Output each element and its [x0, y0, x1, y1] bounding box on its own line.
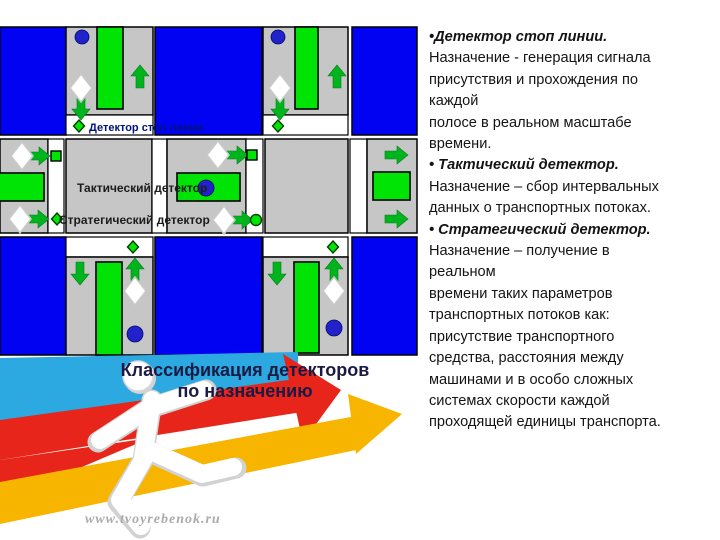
vehicle-dot	[326, 320, 342, 336]
info-line: средства, расстояния между	[429, 348, 715, 369]
slide-title: Классификация детекторов по назначению	[60, 360, 430, 402]
info-line: • Стратегический детектор.	[429, 220, 715, 241]
presentation-slide: Детектор стоп линии Тактический детектор…	[0, 0, 720, 540]
info-line: каждой	[429, 91, 715, 112]
info-line: данных о транспортных потоках.	[429, 198, 715, 219]
city-block	[0, 237, 66, 355]
info-line: проходящей единицы транспорта.	[429, 412, 715, 433]
detection-zone	[96, 262, 122, 355]
vehicle-dot	[127, 326, 143, 342]
strategic-label: Стратегический детектор	[59, 213, 210, 227]
info-line: полосе в реальном масштабе	[429, 113, 715, 134]
info-line: присутствие транспортного	[429, 327, 715, 348]
info-line: •Детектор стоп линии.	[429, 27, 715, 48]
detection-zone	[0, 173, 44, 201]
detector-square-icon	[51, 151, 61, 161]
city-block	[155, 237, 262, 355]
detection-zone	[294, 262, 319, 353]
intersection-box	[265, 139, 348, 233]
slide-title-line1: Классификация детекторов	[60, 360, 430, 381]
watermark: www.tvoyrebenok.ru	[85, 512, 221, 528]
detection-zone	[295, 27, 318, 109]
tactical-label: Тактический детектор	[77, 181, 207, 195]
info-line: • Тактический детектор.	[429, 155, 715, 176]
intersection-diagram: Детектор стоп линии Тактический детектор…	[0, 0, 420, 360]
info-line: Назначение – получение в	[429, 241, 715, 262]
info-line: присутствия и прохождения по	[429, 70, 715, 91]
stop-line-label: Детектор стоп линии	[89, 122, 203, 134]
city-block	[155, 27, 262, 135]
detector-square-icon	[247, 150, 257, 160]
city-block	[352, 237, 417, 355]
info-line: Назначение – сбор интервальных	[429, 177, 715, 198]
city-block	[0, 27, 66, 135]
vehicle-dot	[271, 30, 285, 44]
slide-title-line2: по назначению	[60, 381, 430, 402]
info-text: •Детектор стоп линии.Назначение - генера…	[429, 27, 715, 434]
info-line: времени таких параметров	[429, 284, 715, 305]
yellow-arrowhead-icon	[348, 394, 402, 454]
detector-circle-icon	[251, 215, 262, 226]
detection-zone	[97, 27, 123, 109]
info-line: системах скорости каждой	[429, 391, 715, 412]
info-line: транспортных потоков как:	[429, 305, 715, 326]
info-line: машинами и в особо сложных	[429, 370, 715, 391]
detection-zone	[373, 172, 410, 200]
info-line: Назначение - генерация сигнала	[429, 48, 715, 69]
city-block	[352, 27, 417, 135]
stop-line-strip	[66, 237, 153, 257]
info-line: реальном	[429, 262, 715, 283]
stop-line-strip	[350, 139, 367, 233]
info-line: времени.	[429, 134, 715, 155]
vehicle-dot	[75, 30, 89, 44]
